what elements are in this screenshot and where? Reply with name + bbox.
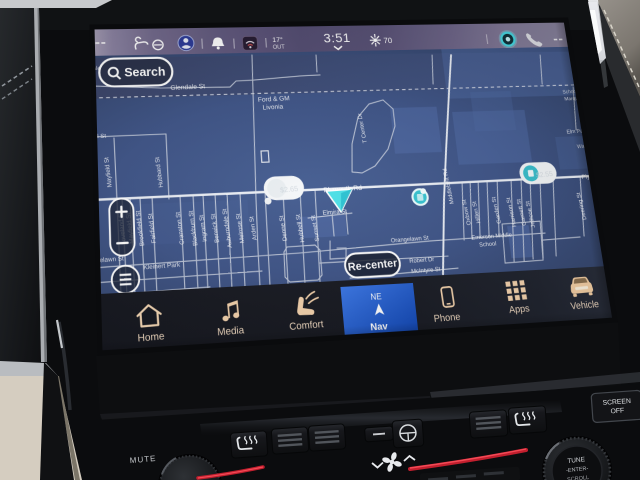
svg-text:NE: NE bbox=[370, 292, 382, 302]
svg-text:ol St: ol St bbox=[94, 134, 107, 141]
svg-text:Search: Search bbox=[124, 65, 166, 80]
svg-text:70: 70 bbox=[383, 37, 393, 46]
svg-text:OUT: OUT bbox=[273, 45, 286, 51]
svg-text:$2.65: $2.65 bbox=[279, 184, 298, 195]
svg-text:Elm Pa: Elm Pa bbox=[566, 129, 584, 136]
svg-text:$2.55: $2.55 bbox=[535, 169, 553, 179]
svg-text:OFF: OFF bbox=[610, 407, 624, 415]
svg-text:Nav: Nav bbox=[370, 320, 389, 332]
svg-text:3:51: 3:51 bbox=[323, 31, 351, 45]
svg-text:17°: 17° bbox=[272, 35, 283, 44]
svg-text:Livonia: Livonia bbox=[262, 104, 284, 112]
svg-text:School: School bbox=[479, 241, 497, 249]
